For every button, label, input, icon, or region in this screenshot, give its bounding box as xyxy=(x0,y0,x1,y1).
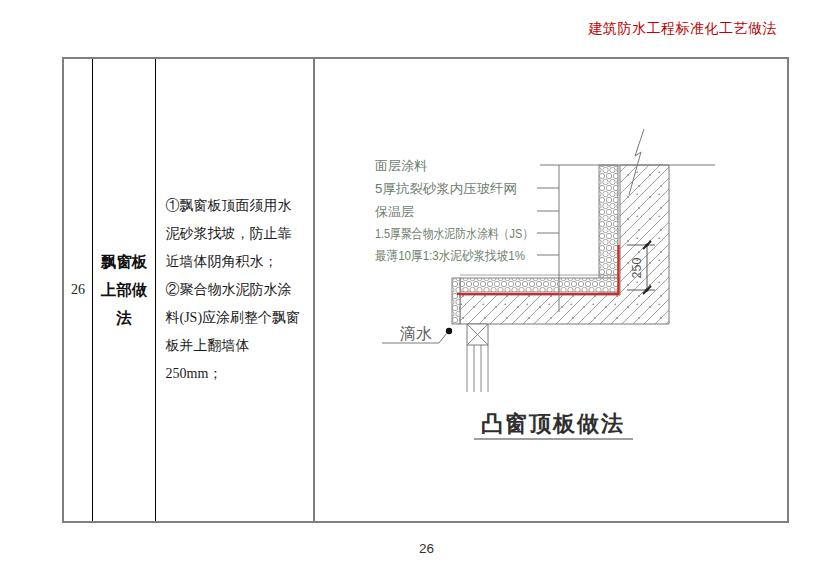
insulation-layer-slab xyxy=(460,278,618,292)
document-header-title: 建筑防水工程标准化工艺做法 xyxy=(589,20,778,38)
layer-label-1: 面层涂料 xyxy=(375,158,427,173)
instructions-cell: ①飘窗板顶面须用水泥砂浆找坡，防止靠近墙体阴角积水； ②聚合物水泥防水涂料(JS… xyxy=(156,59,315,521)
layer-label-2: 5厚抗裂砂浆内压玻纤网 xyxy=(375,181,517,196)
drip-label: 滴水 xyxy=(400,325,432,342)
row-number-cell: 26 xyxy=(64,59,93,521)
layer-label-3: 保温层 xyxy=(375,204,414,219)
instruction-item-1: ①飘窗板顶面须用水泥砂浆找坡，防止靠近墙体阴角积水； xyxy=(166,192,304,276)
layer-label-5: 最薄10厚1:3水泥砂浆找坡1% xyxy=(375,248,525,263)
dimension-label: 250 xyxy=(630,258,644,279)
instruction-item-2: ②聚合物水泥防水涂料(JS)应涂刷整个飘窗板并上翻墙体250mm； xyxy=(166,276,304,388)
diagram-title: 凸窗顶板做法 xyxy=(481,411,625,436)
diagram-cell: 面层涂料 5厚抗裂砂浆内压玻纤网 保温层 1.5厚聚合物水泥防水涂料（JS） 最… xyxy=(315,59,787,521)
page-number: 26 xyxy=(419,541,434,556)
method-name-cell: 飘窗板上部做法 xyxy=(93,59,156,521)
construction-diagram: 面层涂料 5厚抗裂砂浆内压玻纤网 保温层 1.5厚聚合物水泥防水涂料（JS） 最… xyxy=(315,59,786,521)
dim-dot-top xyxy=(645,243,648,246)
layer-label-4: 1.5厚聚合物水泥防水涂料（JS） xyxy=(375,226,533,241)
drip-point xyxy=(446,328,452,334)
row-number: 26 xyxy=(71,282,85,298)
insulation-layer-wall xyxy=(599,165,618,292)
document-table: 26 飘窗板上部做法 ①飘窗板顶面须用水泥砂浆找坡，防止靠近墙体阴角积水； ②聚… xyxy=(62,57,789,523)
method-name: 飘窗板上部做法 xyxy=(99,248,149,332)
insulation-end-cap xyxy=(452,278,460,324)
dim-dot-bottom xyxy=(645,288,648,291)
window-frame-mullions xyxy=(467,345,488,392)
